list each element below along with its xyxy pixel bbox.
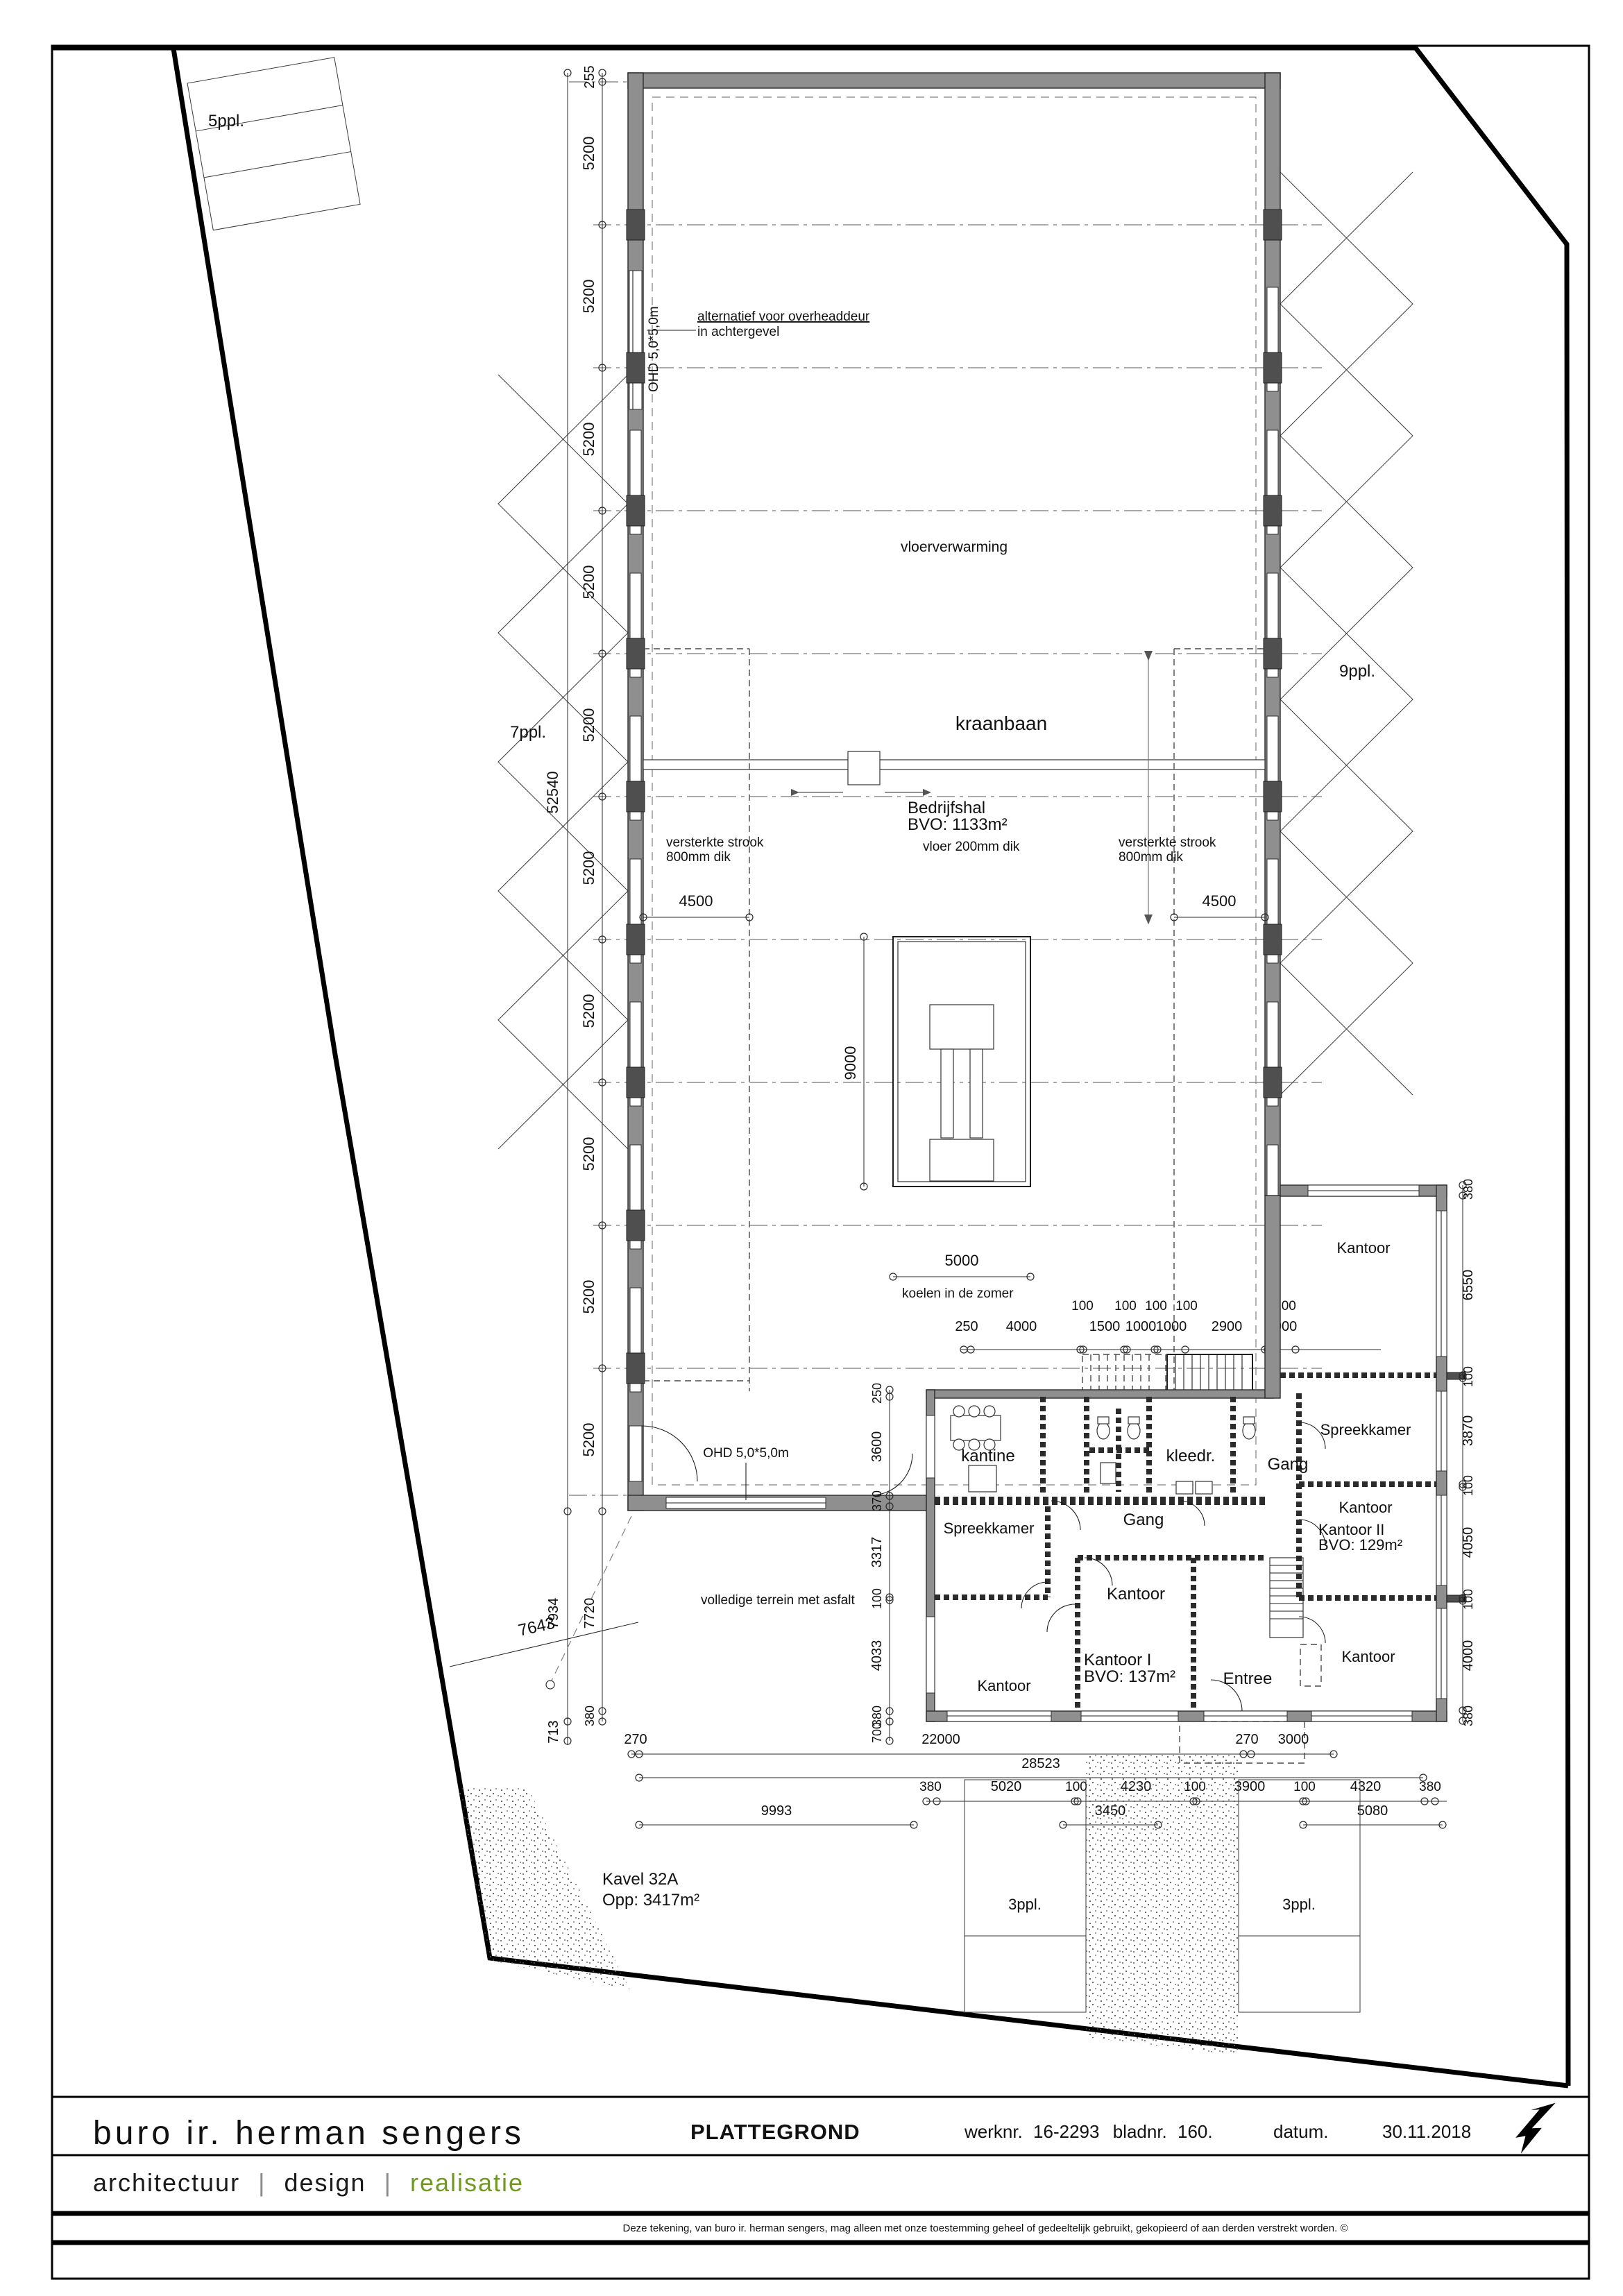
parking-5ppl: 5ppl. (187, 58, 360, 230)
room-kantoor-br: Kantoor (1341, 1648, 1395, 1665)
parking-7ppl-label: 7ppl. (510, 723, 546, 742)
doc-type: PLATTEGROND (690, 2120, 860, 2144)
floor-heating-label: vloerverwarming (901, 539, 1008, 555)
werknr-label: werknr. (964, 2121, 1023, 2142)
dim-5200-9: 5200 (580, 1280, 597, 1314)
drawing-sheet: 5ppl. 7ppl. 9ppl. (0, 0, 1623, 2296)
dim-5200-1: 5200 (580, 137, 597, 171)
dim-5200-7: 5200 (580, 994, 597, 1028)
dim-100-t2: 100 (1114, 1299, 1137, 1313)
dim-5200-2: 5200 (580, 280, 597, 314)
room-kantoor-bl: Kantoor (977, 1677, 1030, 1694)
dim-1500-t: 1500 (1089, 1319, 1121, 1334)
dim-3000: 3000 (1278, 1732, 1309, 1747)
dim-5080: 5080 (1357, 1803, 1388, 1819)
dims-right: 380 6550 100 3870 100 4050 100 4000 380 (1459, 1179, 1476, 1726)
dim-270-b: 270 (1235, 1732, 1258, 1747)
hall-bvo: BVO: 1133m² (908, 815, 1008, 834)
room-spreekkamer-left: Spreekkamer (944, 1520, 1035, 1537)
dim-4000-r: 4000 (1461, 1640, 1476, 1672)
parking-7ppl: 7ppl. (498, 375, 628, 1149)
room-kantoor2-bvo: BVO: 129m² (1318, 1536, 1402, 1554)
strip-right-1: versterkte strook (1119, 835, 1216, 850)
dim-5200-5: 5200 (580, 708, 597, 742)
bladnr-label: bladnr. (1113, 2121, 1167, 2142)
dim-5200-4: 5200 (580, 566, 597, 599)
machine-pit: 9000 5000 (842, 933, 1034, 1280)
dims-left: 52540 7934 713 255 5200 5200 5200 5200 5… (450, 65, 638, 1745)
dim-380-sw: 380 (583, 1706, 597, 1726)
ohd-south-label: OHD 5,0*5,0m (703, 1446, 789, 1461)
dim-1000-t2: 1000 (1156, 1319, 1187, 1334)
dim-713: 713 (546, 1720, 561, 1743)
ohd-alt-2: in achtergevel (697, 325, 779, 339)
parking-9ppl: 9ppl. (1280, 172, 1413, 1095)
stairs-hall (1082, 1354, 1252, 1395)
tagline-sep1: | (258, 2168, 266, 2197)
room-gang-v: Gang (1268, 1455, 1309, 1474)
dim-370-l: 370 (870, 1490, 884, 1511)
tagline-architectuur: architectuur (93, 2168, 240, 2197)
dim-7720: 7720 (582, 1598, 597, 1629)
room-kantoor-center: Kantoor (1107, 1585, 1165, 1604)
dim-4320: 4320 (1350, 1779, 1382, 1794)
strip-left-2: 800mm dik (666, 850, 731, 865)
dim-250-l: 250 (870, 1383, 884, 1404)
structural-grid (569, 82, 1322, 1495)
dim-9993: 9993 (761, 1803, 792, 1819)
room-kleedr: kleedr. (1166, 1447, 1216, 1465)
dims-office-top: 100 100 100 100 100 250 4000 1500 1000 1… (955, 1299, 1381, 1353)
kavel-label: Kavel 32A (602, 1870, 678, 1889)
dim-270-a: 270 (624, 1732, 647, 1747)
room-kantine: kantine (961, 1447, 1014, 1465)
hall-name: Bedrijfshal (908, 799, 985, 817)
dim-100-r1: 100 (1461, 1366, 1475, 1387)
dim-4033-l: 4033 (869, 1640, 885, 1672)
room-gang-h: Gang (1123, 1511, 1164, 1529)
dim-4050-r: 4050 (1461, 1527, 1476, 1558)
dim-3600-l: 3600 (869, 1431, 885, 1463)
tagline-sep2: | (384, 2168, 392, 2197)
room-entree: Entree (1223, 1669, 1273, 1688)
dim-28523: 28523 (1021, 1756, 1060, 1771)
crane-label: kraanbaan (955, 713, 1047, 734)
bladnr-value: 160. (1178, 2121, 1213, 2142)
floor-thickness: vloer 200mm dik (923, 840, 1020, 854)
ohd-alt-1: alternatief voor overheaddeur (697, 309, 870, 324)
dim-4500-left: 4500 (679, 892, 713, 910)
dim-52540: 52540 (544, 771, 561, 813)
tagline-design: design (284, 2168, 366, 2197)
dim-1000-t1: 1000 (1125, 1319, 1157, 1334)
dim-5000: 5000 (945, 1252, 979, 1269)
dim-7643: 7643 (516, 1614, 556, 1640)
room-kantoor1: Kantoor I (1084, 1651, 1151, 1669)
parking-9ppl-label: 9ppl. (1339, 662, 1375, 681)
logo-lightning-icon (1514, 2099, 1556, 2157)
dim-5200-6: 5200 (580, 851, 597, 885)
dim-5200-8: 5200 (580, 1137, 597, 1171)
dim-100-t4: 100 (1175, 1299, 1198, 1313)
dim-380-b1: 380 (919, 1780, 942, 1794)
dim-700-l: 700 (870, 1722, 884, 1743)
dim-5200-3: 5200 (580, 423, 597, 457)
cooling-label: koelen in de zomer (902, 1286, 1014, 1301)
dim-100-b1: 100 (1065, 1780, 1087, 1794)
disclaimer: Deze tekening, van buro ir. herman senge… (623, 2222, 1348, 2234)
dim-100-t3: 100 (1145, 1299, 1167, 1313)
terrain-label: volledige terrein met asfalt (701, 1593, 855, 1608)
dim-380-r1: 380 (1461, 1179, 1475, 1200)
datum-value: 30.11.2018 (1382, 2121, 1471, 2142)
room-kantoor-r2: Kantoor (1339, 1499, 1392, 1516)
firm-name: buro ir. herman sengers (93, 2115, 525, 2152)
titleblock: buro ir. herman sengers PLATTEGROND werk… (52, 2097, 1589, 2243)
dim-255: 255 (582, 65, 597, 88)
plan-canvas: 5ppl. 7ppl. 9ppl. (0, 0, 1623, 2296)
room-spreekkamer-right: Spreekkamer (1320, 1421, 1411, 1438)
dim-380-r2: 380 (1461, 1706, 1475, 1726)
sheet-frame (52, 46, 1589, 2279)
parking-5ppl-label: 5ppl. (208, 112, 244, 130)
room-kantoor1-bvo: BVO: 137m² (1084, 1667, 1175, 1686)
datum-label: datum. (1273, 2121, 1329, 2142)
dim-4500-right: 4500 (1203, 892, 1237, 910)
dim-100-r3: 100 (1461, 1589, 1475, 1610)
dim-250-t: 250 (955, 1319, 978, 1334)
dim-9000: 9000 (842, 1046, 859, 1080)
dim-6550-r: 6550 (1461, 1270, 1476, 1301)
dim-3870-r: 3870 (1461, 1415, 1476, 1447)
werknr-value: 16-2293 (1033, 2121, 1099, 2142)
dim-5200-10: 5200 (580, 1423, 597, 1457)
room-kantoor-tr: Kantoor (1336, 1239, 1390, 1257)
ohd-west-label: OHD 5,0*5,0m (647, 306, 661, 392)
dim-100-t1: 100 (1071, 1299, 1094, 1313)
dim-100-l: 100 (870, 1588, 884, 1609)
dim-5020: 5020 (991, 1779, 1022, 1794)
tagline-realisatie: realisatie (410, 2168, 524, 2197)
dim-100-b3: 100 (1293, 1780, 1316, 1794)
werk-blad-row: werknr. 16-2293 bladnr. 160. (964, 2121, 1213, 2142)
dim-22000: 22000 (921, 1732, 960, 1747)
dim-3317-l: 3317 (869, 1537, 885, 1568)
kavel-area: Opp: 3417m² (602, 1891, 699, 1910)
dim-2900-t: 2900 (1212, 1319, 1243, 1334)
dims-office-left: 250 3600 370 3317 100 4033 380 700 (869, 1383, 893, 1744)
dim-100-r2: 100 (1461, 1475, 1475, 1496)
parking-3ppl-right: 3ppl. (1282, 1896, 1316, 1913)
tagline: architectuur | design | realisatie (93, 2168, 524, 2197)
parking-3ppl-left: 3ppl. (1008, 1896, 1042, 1913)
dim-380-b2: 380 (1419, 1780, 1441, 1794)
dim-4000-t: 4000 (1006, 1319, 1037, 1334)
